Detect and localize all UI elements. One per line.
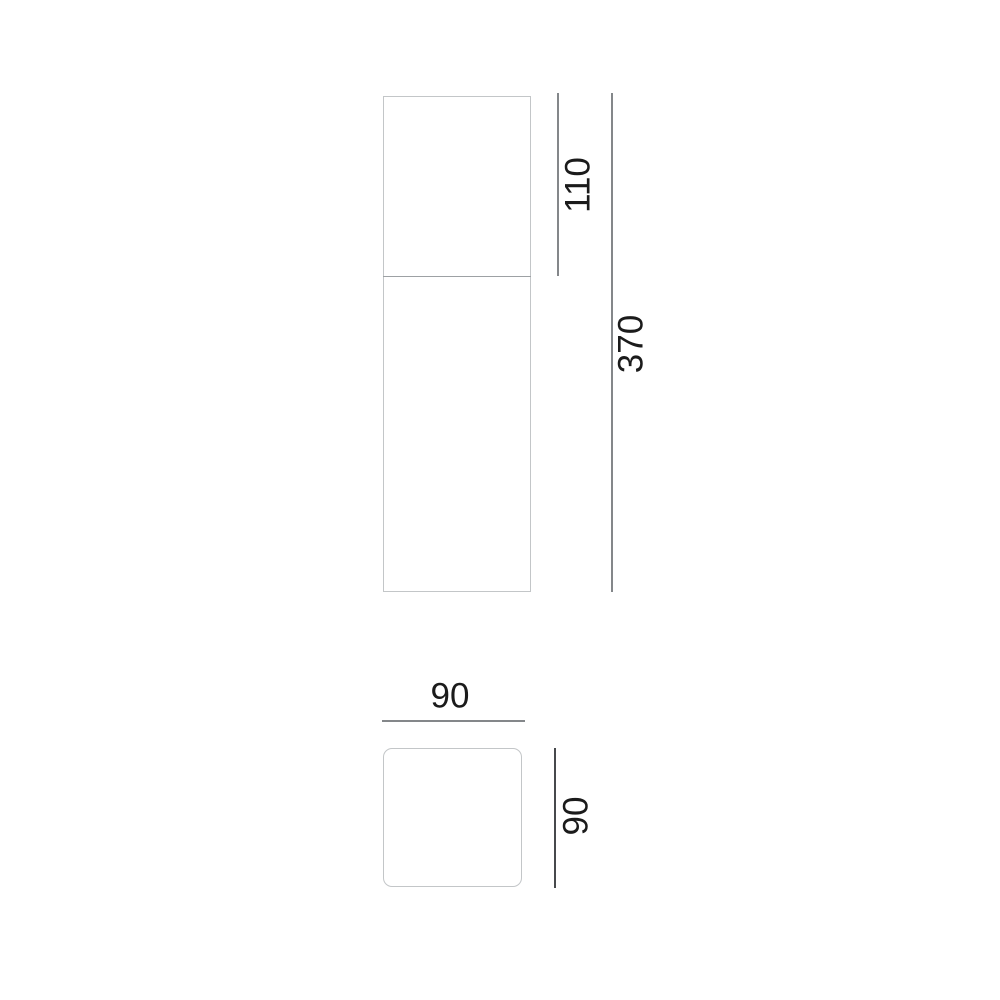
technical-drawing: 110 370 90 90 (0, 0, 1000, 1000)
side-view-outline (383, 96, 531, 592)
top-view-outline (383, 748, 522, 887)
dimension-line-width (382, 720, 525, 722)
dimension-line-depth (554, 748, 556, 888)
dimension-label-width: 90 (431, 679, 470, 714)
side-view-section-divider (383, 276, 531, 277)
dimension-label-depth: 90 (559, 797, 594, 836)
dimension-label-total-height: 370 (614, 315, 649, 373)
dimension-label-top-section: 110 (561, 157, 596, 213)
